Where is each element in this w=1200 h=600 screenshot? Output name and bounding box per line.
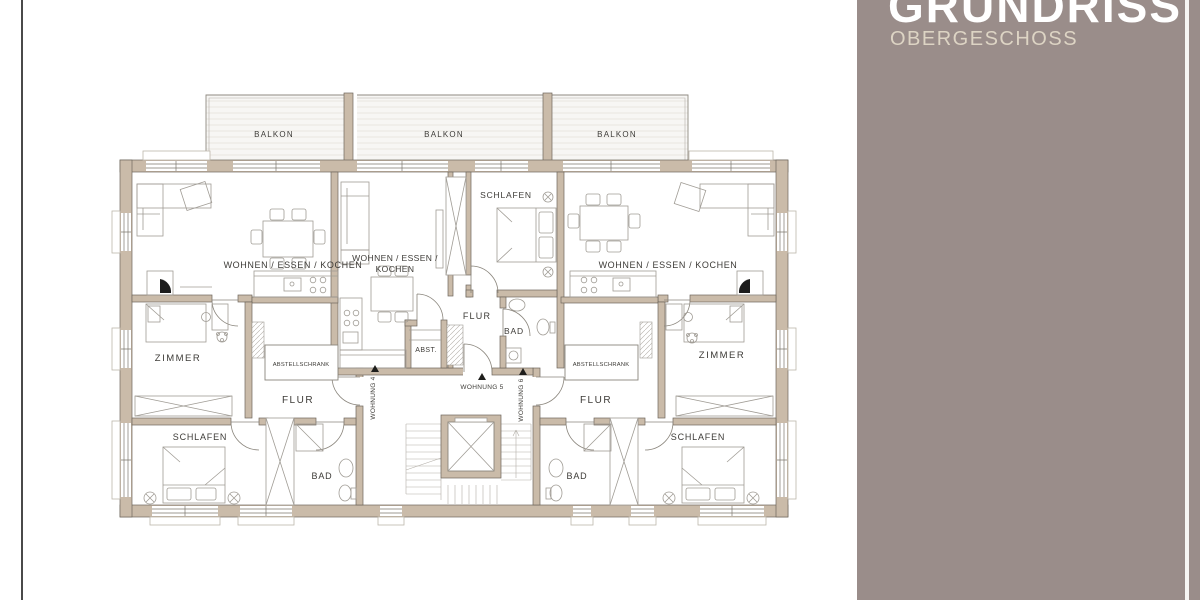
room-label-schlafen-right: SCHLAFEN bbox=[671, 432, 725, 442]
balcony-divider-wall bbox=[543, 93, 552, 165]
floorplan-drawing: BALKON BALKON BALKON WOHNEN / ESSEN / KO… bbox=[0, 0, 860, 600]
balcony-label: BALKON bbox=[254, 130, 294, 139]
unit-label-wohnung-4: WOHNUNG 4 bbox=[370, 376, 377, 419]
room-label-abst-mid: ABST. bbox=[415, 347, 436, 354]
room-label-zimmer-left: ZIMMER bbox=[155, 353, 201, 364]
room-label-zimmer-right: ZIMMER bbox=[699, 350, 745, 361]
room-label-wek-mid-2: KOCHEN bbox=[376, 264, 415, 274]
room-label-wek-left: WOHNEN / ESSEN / KOCHEN bbox=[224, 260, 363, 270]
elevator bbox=[441, 415, 501, 478]
room-label-flur-mid: FLUR bbox=[463, 311, 491, 321]
sidebar: GRUNDRISS OBERGESCHOSS bbox=[857, 0, 1200, 600]
sidebar-divider-stripe bbox=[1185, 0, 1189, 600]
room-label-wek-right: WOHNEN / ESSEN / KOCHEN bbox=[599, 260, 738, 270]
room-label-abstellschrank-left: ABSTELLSCHRANK bbox=[273, 362, 330, 368]
room-label-bad-left: BAD bbox=[312, 471, 333, 481]
room-label-schlafen-mid: SCHLAFEN bbox=[480, 190, 532, 200]
page-subtitle: OBERGESCHOSS bbox=[890, 28, 1078, 50]
room-label-abstellschrank-right: ABSTELLSCHRANK bbox=[573, 362, 630, 368]
unit-label-wohnung-5: WOHNUNG 5 bbox=[460, 384, 503, 391]
unit-label-wohnung-6: WOHNUNG 6 bbox=[518, 378, 525, 421]
room-label-bad-right: BAD bbox=[567, 471, 588, 481]
room-label-flur-left: FLUR bbox=[282, 395, 314, 406]
room-label-schlafen-left: SCHLAFEN bbox=[173, 432, 227, 442]
staircase bbox=[406, 415, 531, 504]
balcony-divider-wall bbox=[344, 93, 353, 165]
room-label-bad-mid: BAD bbox=[504, 326, 524, 336]
page-title: GRUNDRISS bbox=[888, 0, 1182, 29]
room-label-wek-mid-1: WOHNEN / ESSEN / bbox=[352, 253, 438, 263]
balcony-label: BALKON bbox=[597, 130, 637, 139]
room-label-flur-right: FLUR bbox=[580, 395, 612, 406]
balcony-label: BALKON bbox=[424, 130, 464, 139]
